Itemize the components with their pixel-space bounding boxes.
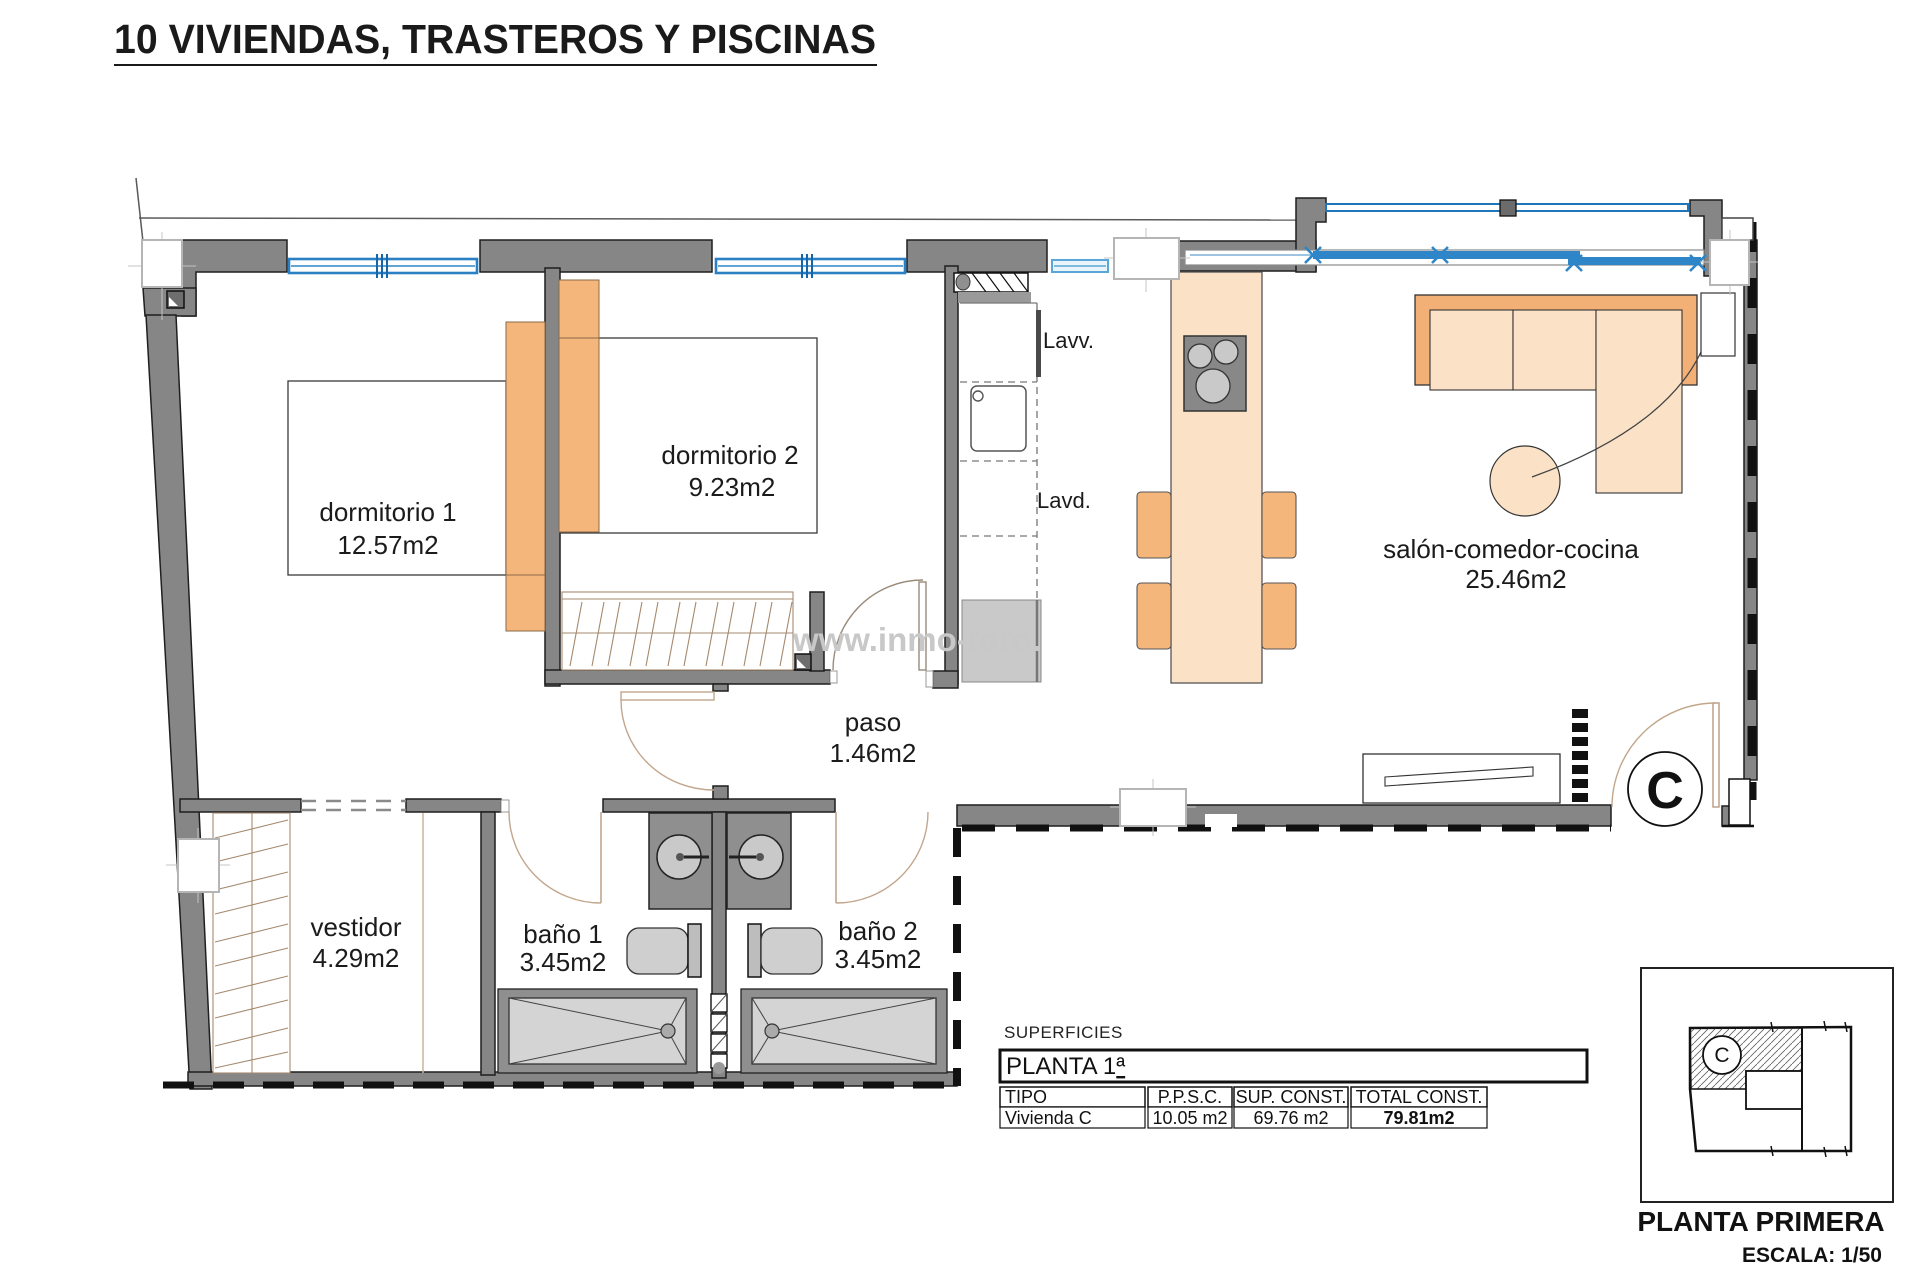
- svg-text:dormitorio 2: dormitorio 2: [661, 440, 798, 470]
- svg-text:salón-comedor-cocina: salón-comedor-cocina: [1383, 534, 1639, 564]
- svg-text:25.46m2: 25.46m2: [1465, 564, 1566, 594]
- svg-text:10.05 m2: 10.05 m2: [1152, 1108, 1227, 1128]
- svg-text:3.45m2: 3.45m2: [520, 947, 607, 977]
- svg-text:PLANTA 1ª: PLANTA 1ª: [1006, 1053, 1125, 1080]
- svg-text:baño 1: baño 1: [523, 919, 603, 949]
- svg-text:C: C: [1714, 1044, 1729, 1067]
- svg-text:paso: paso: [845, 707, 901, 737]
- svg-text:1.46m2: 1.46m2: [830, 738, 917, 768]
- svg-text:TOTAL CONST.: TOTAL CONST.: [1356, 1087, 1483, 1107]
- svg-text:12.57m2: 12.57m2: [337, 530, 438, 560]
- svg-text:baño 2: baño 2: [838, 916, 918, 946]
- svg-text:Lavv.: Lavv.: [1043, 328, 1094, 353]
- svg-text:9.23m2: 9.23m2: [689, 472, 776, 502]
- svg-text:P.P.S.C.: P.P.S.C.: [1158, 1087, 1222, 1107]
- svg-text:ESCALA: 1/50: ESCALA: 1/50: [1742, 1244, 1882, 1267]
- svg-text:10 VIVIENDAS, TRASTEROS Y PISC: 10 VIVIENDAS, TRASTEROS Y PISCINAS: [114, 16, 876, 62]
- svg-text:4.29m2: 4.29m2: [313, 943, 400, 973]
- svg-text:3.45m2: 3.45m2: [835, 944, 922, 974]
- svg-text:Vivienda C: Vivienda C: [1005, 1108, 1092, 1128]
- svg-text:PLANTA PRIMERA: PLANTA PRIMERA: [1637, 1206, 1884, 1237]
- svg-text:SUPERFICIES: SUPERFICIES: [1004, 1023, 1123, 1042]
- svg-text:vestidor: vestidor: [310, 912, 401, 942]
- svg-text:TIPO: TIPO: [1005, 1087, 1047, 1107]
- svg-text:SUP. CONST.: SUP. CONST.: [1236, 1087, 1347, 1107]
- svg-text:www.inmo-toro.: www.inmo-toro.: [792, 621, 1041, 658]
- svg-text:C: C: [1646, 762, 1684, 820]
- svg-text:79.81m2: 79.81m2: [1383, 1108, 1454, 1128]
- svg-text:Lavd.: Lavd.: [1037, 488, 1091, 513]
- svg-text:69.76 m2: 69.76 m2: [1253, 1108, 1328, 1128]
- svg-text:dormitorio 1: dormitorio 1: [319, 497, 456, 527]
